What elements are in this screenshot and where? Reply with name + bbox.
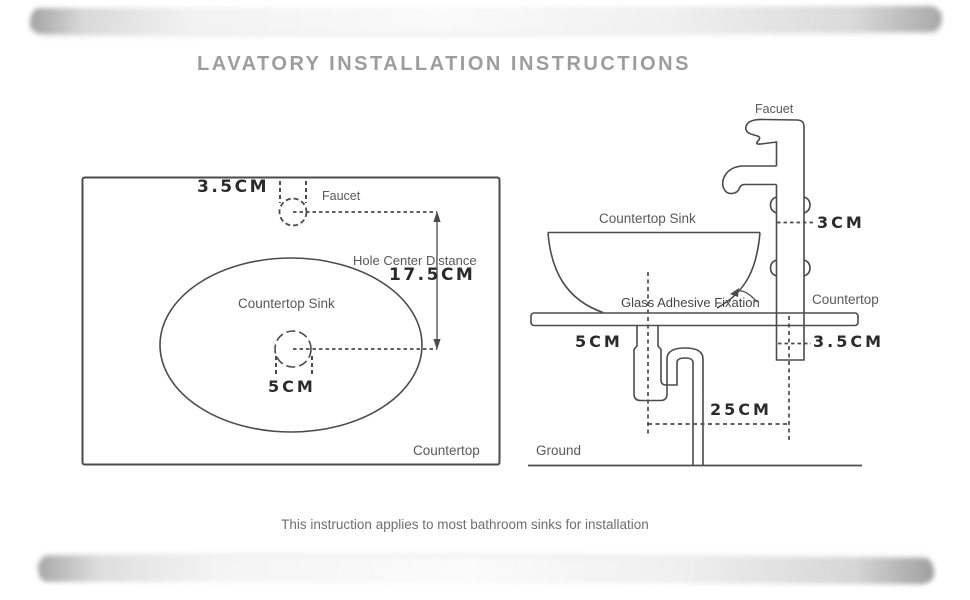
top-view-faucet-hole-diameter: 3.5CM (197, 179, 269, 196)
top-view-countertop-label: Countertop (413, 443, 480, 459)
faucet-handle (723, 166, 777, 194)
side-view-countertop-label: Countertop (812, 292, 879, 308)
top-view-drain-diameter: 5CM (268, 379, 316, 395)
footer-caption: This instruction applies to most bathroo… (170, 517, 760, 532)
hole-center-distance-value: 17.5CM (389, 267, 475, 284)
side-view-sink-label: Countertop Sink (599, 211, 696, 227)
top-view-faucet-label: Faucet (322, 189, 360, 203)
arrowhead-down (433, 339, 440, 350)
instruction-sheet: LAVATORY INSTALLATION INSTRUCTIONS (0, 0, 970, 600)
top-view-sink-label: Countertop Sink (238, 296, 335, 312)
sink-ellipse (160, 258, 422, 432)
fixation-label: Glass Adhesive Fixation (621, 296, 760, 311)
faucet-outline (723, 119, 810, 360)
faucet-body-diameter: 3CM (817, 215, 865, 231)
faucet-body (777, 139, 805, 360)
side-view-faucet-label: Facuet (755, 102, 793, 116)
top-view-drawing (83, 178, 500, 465)
ground-label: Ground (536, 443, 581, 459)
side-view-faucet-hole-diameter: 3.5CM (813, 334, 884, 350)
drain-trap (634, 326, 703, 465)
drain-to-faucet-distance: 25CM (710, 402, 772, 418)
arrowhead-up (433, 211, 440, 222)
countertop-slab (531, 313, 858, 326)
side-view-drain-diameter: 5CM (575, 334, 623, 350)
